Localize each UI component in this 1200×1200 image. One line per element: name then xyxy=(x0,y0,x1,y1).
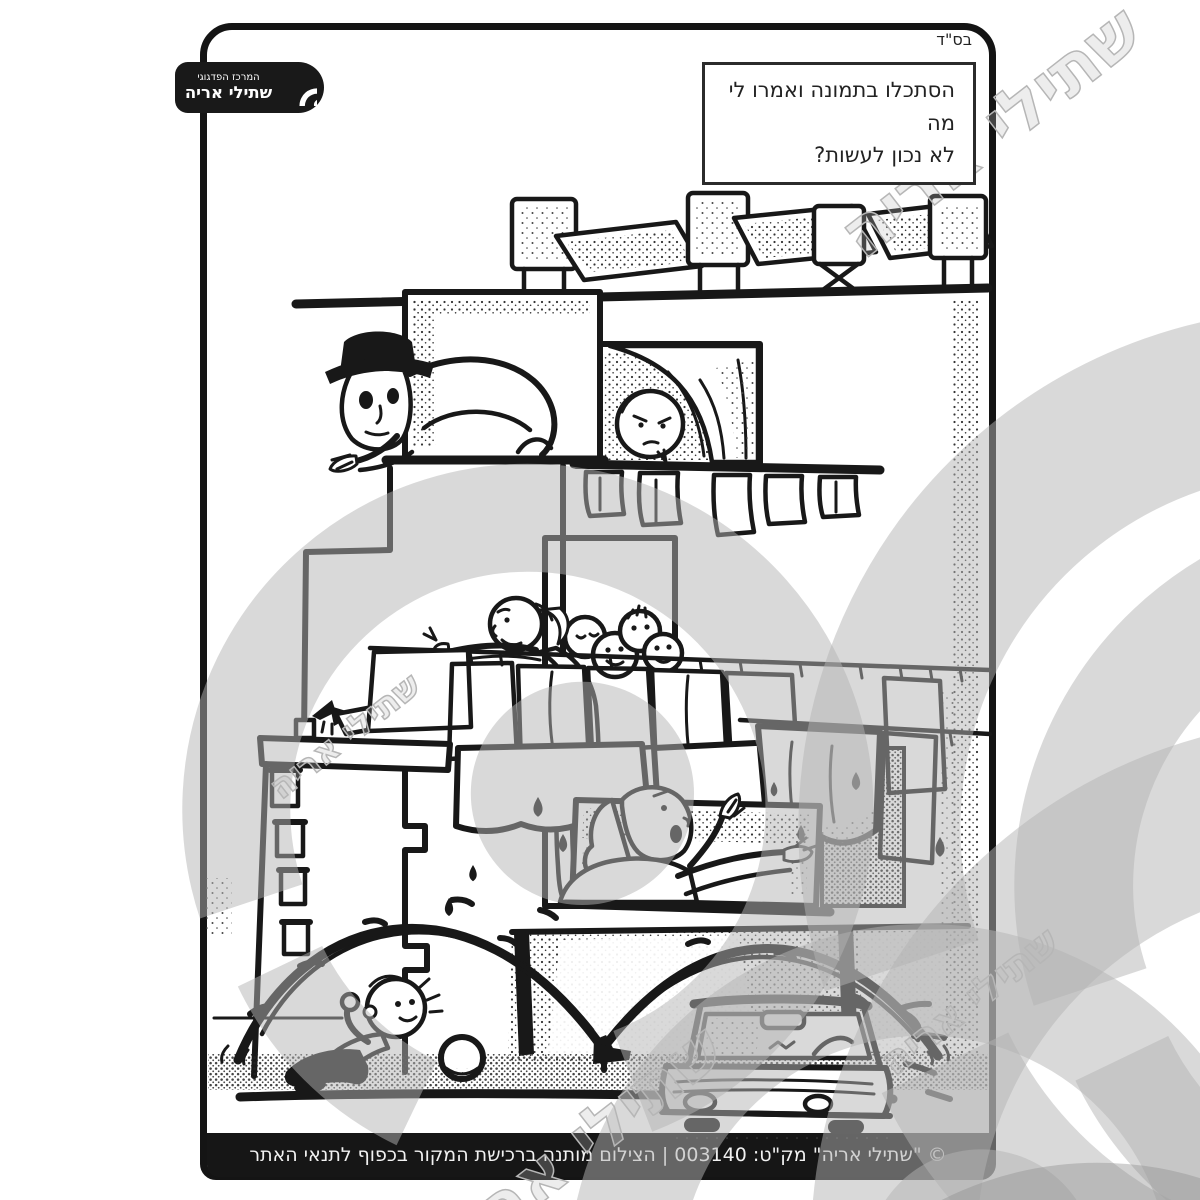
page-border-frame xyxy=(200,23,996,1180)
question-line-1: הסתכלו בתמונה ואמרו לי מה xyxy=(723,74,955,139)
shtilei-arye-logo-icon xyxy=(281,70,317,106)
publisher-name-small: המרכז הפדגוגי xyxy=(197,73,259,83)
question-line-2: לא נכון לעשות? xyxy=(723,139,955,172)
publisher-badge: המרכז הפדגוגי שתילי אריה xyxy=(175,62,324,113)
publisher-badge-text: המרכז הפדגוגי שתילי אריה xyxy=(181,73,276,103)
footer-bar: © "שתילי אריה" מק"ט: 003140 | הצילום מות… xyxy=(207,1133,989,1177)
worksheet-page: © "שתילי אריה" מק"ט: 003140 | הצילום מות… xyxy=(0,0,1200,1200)
question-box: הסתכלו בתמונה ואמרו לי מה לא נכון לעשות? xyxy=(702,62,976,185)
publisher-name-large: שתילי אריה xyxy=(185,84,272,103)
bsd-text: בס"ד xyxy=(880,30,972,49)
footer-copyright-text: © "שתילי אריה" מק"ט: 003140 | הצילום מות… xyxy=(249,1144,946,1166)
watermark-logo-icon xyxy=(1074,565,1200,1200)
